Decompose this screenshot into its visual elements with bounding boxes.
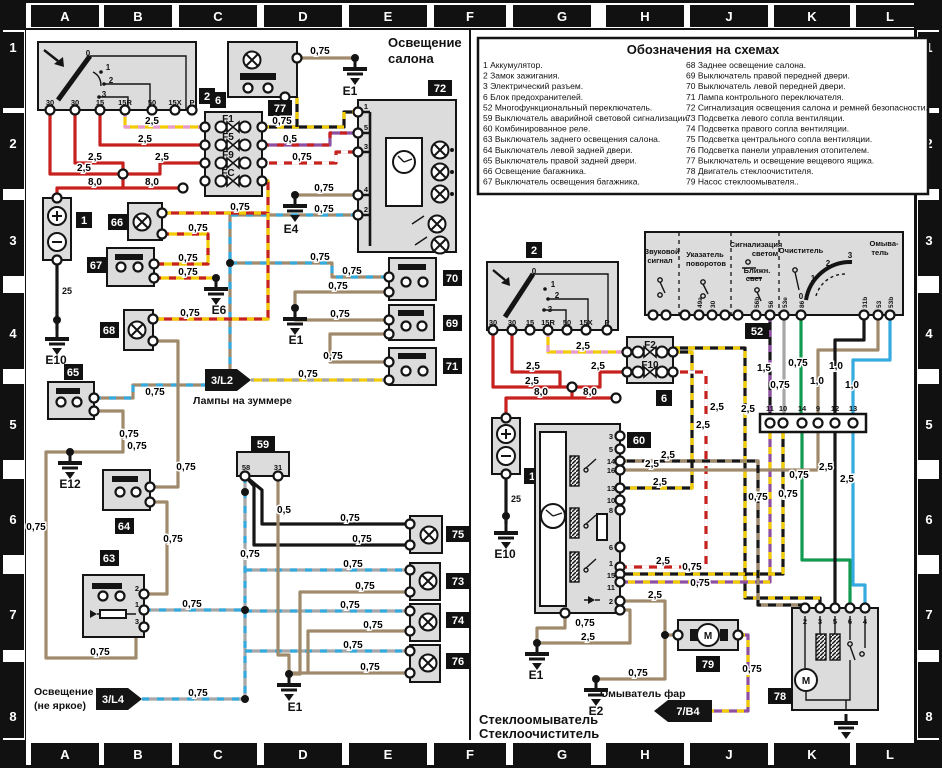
left-circuit-title-1: Освещение xyxy=(388,35,462,50)
svg-text:11: 11 xyxy=(607,583,615,592)
svg-text:2,5: 2,5 xyxy=(525,376,539,387)
svg-text:9: 9 xyxy=(816,404,820,413)
svg-text:4: 4 xyxy=(9,326,17,341)
svg-text:4: 4 xyxy=(925,326,933,341)
svg-text:A: A xyxy=(60,747,70,762)
svg-text:1: 1 xyxy=(609,559,613,568)
svg-text:2,5: 2,5 xyxy=(581,632,595,643)
svg-text:3: 3 xyxy=(135,617,139,626)
svg-text:53: 53 xyxy=(876,300,883,308)
badge-75: 75 xyxy=(452,529,464,541)
svg-text:15: 15 xyxy=(607,571,615,580)
svg-text:25: 25 xyxy=(511,494,521,504)
svg-text:1: 1 xyxy=(551,280,556,289)
svg-text:8,0: 8,0 xyxy=(534,387,548,398)
svg-text:8: 8 xyxy=(609,506,613,515)
grid-col: A xyxy=(60,9,70,24)
svg-text:3: 3 xyxy=(9,233,16,248)
badge-59: 59 xyxy=(257,439,269,451)
svg-text:1: 1 xyxy=(9,40,16,55)
svg-text:31b: 31b xyxy=(862,297,869,308)
badge-72: 72 xyxy=(434,83,446,95)
svg-text:поворотов: поворотов xyxy=(686,259,726,268)
svg-text:0,75: 0,75 xyxy=(748,492,768,503)
svg-text:6 Блок предохранителей.: 6 Блок предохранителей. xyxy=(483,92,583,102)
ign-pos: 0 xyxy=(86,49,91,58)
svg-text:0,75: 0,75 xyxy=(352,534,372,545)
svg-text:67 Выключатель освещения багаж: 67 Выключатель освещения багажника. xyxy=(483,177,640,187)
svg-text:0,75: 0,75 xyxy=(690,578,710,589)
badge-63: 63 xyxy=(103,553,115,565)
grid-col: D xyxy=(298,9,307,24)
svg-text:8,0: 8,0 xyxy=(88,177,102,188)
arrow-caption: Лампы на зуммере xyxy=(193,395,292,407)
svg-text:E10: E10 xyxy=(45,353,67,367)
svg-text:0,75: 0,75 xyxy=(742,664,762,675)
svg-text:8,0: 8,0 xyxy=(583,387,597,398)
svg-text:5: 5 xyxy=(609,445,613,454)
badge-6: 6 xyxy=(215,95,221,107)
svg-text:2: 2 xyxy=(364,205,368,214)
svg-text:0,75: 0,75 xyxy=(292,152,312,163)
svg-text:52 Многофункциональный переклю: 52 Многофункциональный переключатель. xyxy=(483,102,652,112)
svg-text:0,75: 0,75 xyxy=(330,309,350,320)
grid-col: G xyxy=(557,9,567,24)
legend-title: Обозначения на схемах xyxy=(627,42,780,57)
svg-text:2: 2 xyxy=(109,76,114,85)
svg-text:0,75: 0,75 xyxy=(355,581,375,592)
svg-text:0,75: 0,75 xyxy=(778,489,798,500)
badge-79: 79 xyxy=(702,659,714,671)
svg-text:14: 14 xyxy=(798,404,807,413)
svg-text:13: 13 xyxy=(849,404,857,413)
grid-col: K xyxy=(807,9,817,24)
arrow-caption: Омыватель фар xyxy=(600,688,686,700)
svg-text:L: L xyxy=(886,747,894,762)
svg-text:1: 1 xyxy=(135,600,139,609)
svg-text:0,75: 0,75 xyxy=(272,116,292,127)
badge-76: 76 xyxy=(452,656,464,668)
relay60-terminal: 3 xyxy=(609,432,613,441)
svg-text:0,75: 0,75 xyxy=(145,387,165,398)
svg-text:0,75: 0,75 xyxy=(310,252,330,263)
ms52-section: Звуковой xyxy=(644,247,680,256)
svg-text:1: 1 xyxy=(811,274,816,283)
svg-text:8,0: 8,0 xyxy=(145,177,159,188)
svg-text:68 Заднее освещение салона.: 68 Заднее освещение салона. xyxy=(686,60,806,70)
svg-text:74 Подсветка правого сопла вен: 74 Подсветка правого сопла вентиляции. xyxy=(686,124,849,134)
svg-text:10: 10 xyxy=(779,404,787,413)
grid-col: B xyxy=(133,9,142,24)
grid-col: F xyxy=(466,9,474,24)
svg-text:2,5: 2,5 xyxy=(741,404,755,415)
svg-text:F: F xyxy=(466,747,474,762)
svg-text:2: 2 xyxy=(9,136,16,151)
svg-text:J: J xyxy=(725,747,732,762)
svg-text:2,5: 2,5 xyxy=(526,361,540,372)
svg-text:16: 16 xyxy=(607,466,615,475)
badge-73: 73 xyxy=(452,576,464,588)
svg-text:0,75: 0,75 xyxy=(323,351,343,362)
badge-64: 64 xyxy=(118,521,131,533)
svg-text:3: 3 xyxy=(364,142,368,151)
belt-warning-unit-72: 72 1 5 3 4 2 xyxy=(354,80,457,254)
svg-text:2,5: 2,5 xyxy=(648,590,662,601)
svg-text:0,75: 0,75 xyxy=(178,267,198,278)
svg-text:70 Выключатель левой передней: 70 Выключатель левой передней двери. xyxy=(686,81,846,91)
svg-text:0,75: 0,75 xyxy=(240,549,260,560)
svg-text:E12: E12 xyxy=(59,477,81,491)
svg-text:0,75: 0,75 xyxy=(628,668,648,679)
svg-text:7: 7 xyxy=(925,607,932,622)
svg-text:65 Выключатель правой задней д: 65 Выключатель правой задней двери. xyxy=(483,155,637,165)
svg-text:H: H xyxy=(640,747,649,762)
badge-74: 74 xyxy=(452,615,465,627)
svg-text:2,5: 2,5 xyxy=(88,152,102,163)
badge-70: 70 xyxy=(446,273,458,285)
badge-66: 66 xyxy=(111,217,123,229)
grid-col: H xyxy=(640,9,649,24)
svg-text:2: 2 xyxy=(531,245,537,257)
svg-text:0,75: 0,75 xyxy=(180,308,200,319)
svg-text:2,5: 2,5 xyxy=(819,462,833,473)
badge-1: 1 xyxy=(81,215,87,227)
right-circuit-title-2: Стеклоочиститель xyxy=(479,726,599,741)
svg-text:0,5: 0,5 xyxy=(283,134,297,145)
svg-text:0,75: 0,75 xyxy=(342,266,362,277)
svg-text:2,5: 2,5 xyxy=(591,361,605,372)
svg-text:13: 13 xyxy=(607,484,615,493)
svg-text:0,75: 0,75 xyxy=(90,647,110,658)
svg-text:76 Подсветка панели управления: 76 Подсветка панели управления отопителе… xyxy=(686,145,869,155)
wire-gauge: 0,75 xyxy=(310,46,330,57)
badge-78: 78 xyxy=(774,691,786,703)
svg-text:75 Подсветка центрального сопл: 75 Подсветка центрального сопла вентиляц… xyxy=(686,134,872,144)
svg-text:2: 2 xyxy=(555,291,560,300)
ms52-terminal: 49a xyxy=(697,297,704,308)
svg-text:66 Освещение багажника.: 66 Освещение багажника. xyxy=(483,166,586,176)
svg-text:56: 56 xyxy=(768,300,775,308)
svg-text:3: 3 xyxy=(848,251,853,260)
left-circuit-title-2: салона xyxy=(388,51,434,66)
svg-text:E1: E1 xyxy=(529,668,544,682)
svg-text:30: 30 xyxy=(710,300,717,308)
svg-text:63 Выключатель заднего освещен: 63 Выключатель заднего освещения салона. xyxy=(483,134,660,144)
svg-text:1,0: 1,0 xyxy=(810,376,824,387)
svg-text:E6: E6 xyxy=(212,303,227,317)
svg-text:72 Сигнализация освещения сало: 72 Сигнализация освещения салона и ремне… xyxy=(686,102,928,112)
svg-text:2,5: 2,5 xyxy=(138,134,152,145)
svg-text:2,5: 2,5 xyxy=(661,450,675,461)
right-circuit-title-1: Стеклоомыватель xyxy=(479,712,598,727)
svg-text:6: 6 xyxy=(661,393,667,405)
svg-text:0: 0 xyxy=(799,292,804,301)
legend-item: 1 Аккумулятор. xyxy=(483,60,543,70)
svg-text:5: 5 xyxy=(925,417,932,432)
motor-letter: M xyxy=(704,631,712,642)
svg-text:0,75: 0,75 xyxy=(314,183,334,194)
svg-text:53e: 53e xyxy=(782,297,789,308)
badge-71: 71 xyxy=(446,361,458,373)
svg-text:0,75: 0,75 xyxy=(788,358,808,369)
ignition-switch-left: 0 1 2 3 30 30 15 15R 50 15X P 2 xyxy=(38,42,215,115)
svg-text:2,5: 2,5 xyxy=(710,402,724,413)
svg-text:B: B xyxy=(133,747,142,762)
svg-text:7: 7 xyxy=(9,607,16,622)
svg-text:78 Двигатель стеклоочистителя.: 78 Двигатель стеклоочистителя. xyxy=(686,166,813,176)
svg-text:0,75: 0,75 xyxy=(789,470,809,481)
svg-text:E: E xyxy=(384,747,393,762)
svg-text:Омыва-: Омыва- xyxy=(870,239,899,248)
svg-text:69 Выключатель правой передней: 69 Выключатель правой передней двери. xyxy=(686,71,850,81)
arrow-label: 3/L2 xyxy=(211,375,233,387)
svg-text:E1: E1 xyxy=(289,333,304,347)
badge-65: 65 xyxy=(67,367,79,379)
badge-67: 67 xyxy=(90,260,102,272)
svg-text:10: 10 xyxy=(607,496,615,505)
svg-text:12: 12 xyxy=(831,404,839,413)
svg-text:0,75: 0,75 xyxy=(360,662,380,673)
b63-terminal: 2 xyxy=(135,584,139,593)
svg-text:2,5: 2,5 xyxy=(155,152,169,163)
svg-text:0,75: 0,75 xyxy=(343,640,363,651)
svg-text:D: D xyxy=(298,747,307,762)
svg-text:0,5: 0,5 xyxy=(277,505,291,516)
svg-text:1,0: 1,0 xyxy=(845,380,859,391)
svg-text:0,75: 0,75 xyxy=(682,562,702,573)
badge-2: 2 xyxy=(204,91,210,103)
svg-text:77 Выключатель и освещение вещ: 77 Выключатель и освещение вещевого ящик… xyxy=(686,155,874,165)
svg-text:(не яркое): (не яркое) xyxy=(34,700,86,712)
svg-text:3: 3 xyxy=(925,233,932,248)
svg-text:E1: E1 xyxy=(288,700,303,714)
svg-text:79 Насос стеклоомывателя..: 79 Насос стеклоомывателя.. xyxy=(686,177,799,187)
badge-77: 77 xyxy=(274,103,286,115)
svg-text:C: C xyxy=(213,747,223,762)
svg-text:M: M xyxy=(802,676,810,687)
svg-text:E10: E10 xyxy=(494,547,516,561)
svg-text:3/L4: 3/L4 xyxy=(102,694,125,706)
svg-text:8: 8 xyxy=(925,709,932,724)
svg-text:3 Электрический разъем.: 3 Электрический разъем. xyxy=(483,81,583,91)
svg-text:K: K xyxy=(807,747,817,762)
badge-52: 52 xyxy=(751,326,763,338)
svg-text:2,5: 2,5 xyxy=(145,116,159,127)
svg-text:3: 3 xyxy=(548,305,553,314)
svg-text:7/B4: 7/B4 xyxy=(676,706,700,718)
svg-text:0,75: 0,75 xyxy=(770,380,790,391)
badge-60: 60 xyxy=(633,435,645,447)
svg-text:2: 2 xyxy=(609,597,613,606)
badge-68: 68 xyxy=(103,325,115,337)
svg-text:71 Лампа контрольного переключ: 71 Лампа контрольного переключателя. xyxy=(686,92,844,102)
svg-text:светом: светом xyxy=(752,249,779,258)
svg-text:59 Выключатель аварийной свето: 59 Выключатель аварийной световой сигнал… xyxy=(483,113,690,123)
svg-text:1: 1 xyxy=(106,63,111,72)
svg-text:2,5: 2,5 xyxy=(576,341,590,352)
svg-text:Освещение: Освещение xyxy=(34,686,94,698)
svg-text:0,75: 0,75 xyxy=(119,429,139,440)
svg-text:2,5: 2,5 xyxy=(653,477,667,488)
svg-text:Очиститель: Очиститель xyxy=(779,246,824,255)
grid-col: L xyxy=(886,9,894,24)
svg-text:0,75: 0,75 xyxy=(127,441,147,452)
svg-text:0,75: 0,75 xyxy=(188,223,208,234)
svg-text:2,5: 2,5 xyxy=(696,420,710,431)
lamp-icon xyxy=(244,52,261,69)
svg-text:0,75: 0,75 xyxy=(575,618,595,629)
svg-text:2,5: 2,5 xyxy=(840,474,854,485)
svg-text:тель: тель xyxy=(871,248,889,257)
svg-text:0,75: 0,75 xyxy=(340,600,360,611)
svg-text:0,75: 0,75 xyxy=(343,559,363,570)
connector-terminal: 11 xyxy=(766,404,774,413)
svg-text:2,5: 2,5 xyxy=(656,556,670,567)
svg-text:73 Подсветка левого сопла вент: 73 Подсветка левого сопла вентиляции. xyxy=(686,113,845,123)
svg-text:1,5: 1,5 xyxy=(757,363,771,374)
svg-text:0,75: 0,75 xyxy=(163,534,183,545)
svg-text:2: 2 xyxy=(826,259,831,268)
svg-text:Указатель: Указатель xyxy=(686,250,724,259)
svg-text:6: 6 xyxy=(925,512,932,527)
svg-text:6: 6 xyxy=(609,543,613,552)
badge-69: 69 xyxy=(446,318,458,330)
grid-col: E xyxy=(384,9,393,24)
svg-text:сигнал: сигнал xyxy=(647,256,673,265)
svg-text:53b: 53b xyxy=(888,297,895,308)
svg-text:5: 5 xyxy=(9,417,16,432)
svg-text:2,5: 2,5 xyxy=(77,163,91,174)
svg-text:0: 0 xyxy=(532,267,537,276)
svg-text:0,75: 0,75 xyxy=(298,369,318,380)
svg-text:0,75: 0,75 xyxy=(176,462,196,473)
svg-text:56b: 56b xyxy=(754,297,761,308)
svg-text:0,75: 0,75 xyxy=(363,620,383,631)
svg-text:5: 5 xyxy=(364,123,368,132)
svg-text:60 Комбинированное реле.: 60 Комбинированное реле. xyxy=(483,124,590,134)
svg-text:0,75: 0,75 xyxy=(314,204,334,215)
svg-text:Сигнализация: Сигнализация xyxy=(730,240,783,249)
wiring-diagram-page: A B C D E F G H J K L A B C D E F G H J … xyxy=(0,0,942,768)
svg-text:64 Выключатель левой задней дв: 64 Выключатель левой задней двери. xyxy=(483,145,633,155)
svg-text:0,75: 0,75 xyxy=(26,522,46,533)
diagram-canvas: A B C D E F G H J K L A B C D E F G H J … xyxy=(0,0,942,768)
svg-text:0,75: 0,75 xyxy=(178,253,198,264)
svg-text:0,75: 0,75 xyxy=(340,513,360,524)
grid-col: C xyxy=(213,9,223,24)
grid-col: J xyxy=(725,9,732,24)
svg-text:0,75: 0,75 xyxy=(182,599,202,610)
legend-box: Обозначения на схемах 1 Аккумулятор. 2 З… xyxy=(478,38,928,194)
battery-wire-25: 25 xyxy=(62,286,72,296)
svg-text:0,75: 0,75 xyxy=(328,281,348,292)
svg-text:6: 6 xyxy=(9,512,16,527)
svg-text:E4: E4 xyxy=(284,222,299,236)
svg-text:0,75: 0,75 xyxy=(230,202,250,213)
svg-text:2,5: 2,5 xyxy=(645,459,659,470)
svg-text:1,0: 1,0 xyxy=(829,361,843,372)
b72-terminal: 1 xyxy=(364,102,368,111)
svg-text:G: G xyxy=(557,747,567,762)
svg-text:8: 8 xyxy=(9,709,16,724)
svg-text:86: 86 xyxy=(799,300,806,308)
ground-label: E1 xyxy=(343,84,358,98)
svg-text:2 Замок зажигания.: 2 Замок зажигания. xyxy=(483,71,560,81)
svg-text:0,75: 0,75 xyxy=(188,688,208,699)
